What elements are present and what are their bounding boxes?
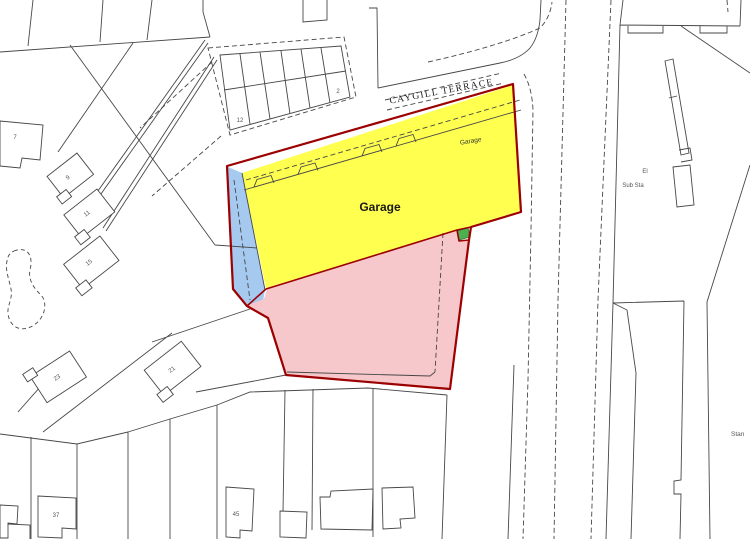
house-number-45: 45: [233, 512, 240, 518]
stan-label: Stan: [731, 431, 745, 438]
site-plan-map: CAYGILL TERRACE Garage Garage El Sub Sta…: [0, 0, 750, 539]
garage-row-number-12: 12: [237, 118, 244, 124]
garage-main-label: Garage: [359, 200, 401, 214]
el-sub-sta-label-line1: El: [642, 169, 647, 175]
site-plan-canvas: CAYGILL TERRACE Garage Garage El Sub Sta…: [0, 0, 750, 539]
house-45: [226, 487, 254, 538]
house-number-37: 37: [53, 513, 60, 519]
el-sub-sta-label-line2: Sub Sta: [622, 183, 644, 189]
house-bottom-left: [280, 511, 307, 538]
